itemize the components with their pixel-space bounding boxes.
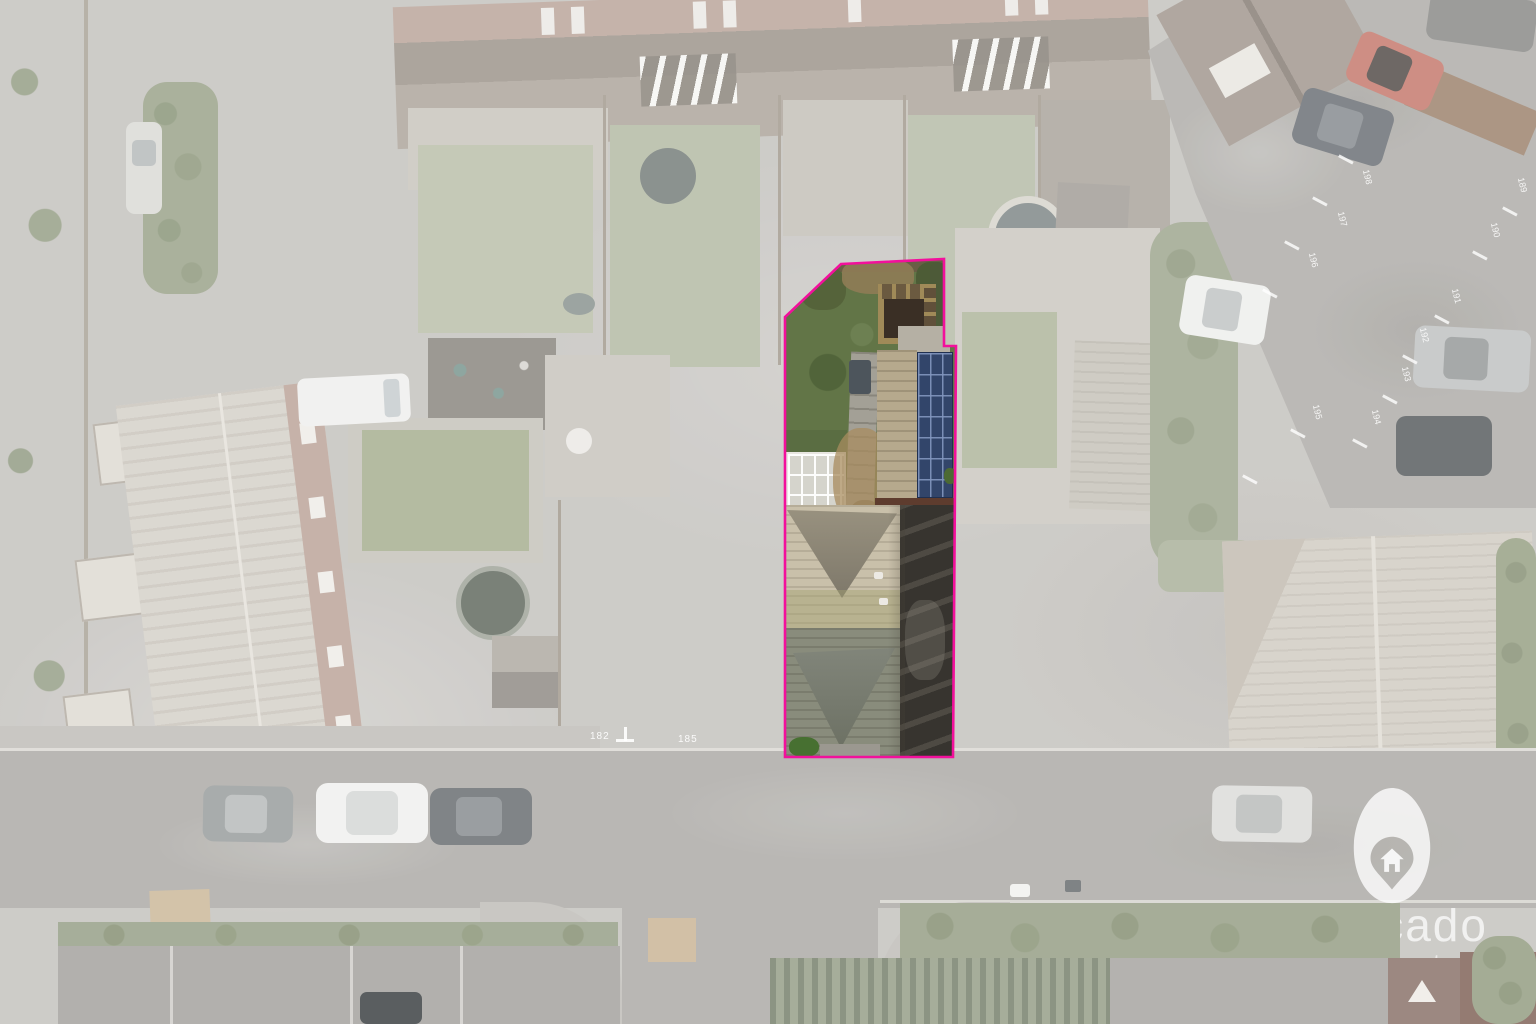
garden-shed: [492, 636, 560, 708]
outbuilding-tile-roof: [877, 350, 917, 500]
lawn: [362, 430, 529, 551]
fence-line: [558, 500, 561, 750]
pavement-number: 182: [590, 731, 610, 742]
car-roof: [346, 791, 398, 835]
roof-vent: [879, 598, 888, 605]
dark-car: [430, 788, 532, 845]
car-windows: [1365, 44, 1415, 94]
large-roof: [1222, 531, 1536, 770]
pavement-number: 185: [678, 734, 698, 745]
garden-table: [566, 428, 592, 454]
grey-car: [203, 785, 294, 843]
shrub: [789, 737, 819, 757]
storage-box: [849, 360, 871, 394]
white-van-small: [1010, 884, 1030, 897]
path-edge: [820, 744, 880, 757]
window: [1004, 0, 1018, 16]
car-windshield: [132, 140, 156, 166]
fence-line: [603, 95, 606, 367]
fence-line: [778, 95, 781, 365]
car-windows: [225, 795, 268, 834]
window: [318, 571, 335, 594]
trampoline: [640, 148, 696, 204]
allotment-rows: [770, 958, 1110, 1024]
skylight-array: [640, 53, 738, 106]
pond: [563, 293, 595, 315]
curb-line: [0, 748, 1536, 751]
parked-car: [126, 122, 162, 214]
flat-roof-garage: [428, 338, 556, 430]
roof-white-patch: [1209, 43, 1271, 98]
trees: [1496, 538, 1536, 768]
grey-car: [1412, 325, 1531, 393]
car-windows: [1236, 795, 1283, 834]
trees: [1472, 936, 1536, 1024]
car-windshield: [1201, 287, 1243, 332]
window: [1034, 0, 1048, 15]
roof-ridge: [1371, 536, 1383, 764]
roof-ridge: [217, 393, 266, 769]
dark-car: [360, 992, 422, 1024]
pavement-mark: [616, 739, 634, 742]
shrub: [944, 468, 956, 484]
window: [571, 7, 585, 34]
white-car: [1212, 785, 1313, 843]
garage-roof: [1069, 341, 1163, 512]
roof-vent: [874, 572, 883, 579]
hedge-row: [900, 903, 1400, 961]
window: [327, 645, 344, 668]
car-windows: [456, 797, 502, 836]
car-windows: [1443, 337, 1489, 381]
van-windshield: [383, 379, 401, 418]
faded-surroundings: 198197196195194193192191190189: [0, 0, 1536, 1024]
car-roof: [1315, 102, 1364, 150]
white-car: [316, 783, 428, 843]
driveway-divider: [460, 946, 463, 1024]
dark-car: [1396, 416, 1492, 476]
driveway-divider: [170, 946, 173, 1024]
fence-line: [84, 0, 88, 748]
tactile-paving: [648, 918, 696, 962]
window: [541, 8, 555, 35]
lawn: [962, 312, 1057, 468]
hedge-row: [58, 922, 618, 948]
window: [308, 496, 325, 519]
driveway: [58, 946, 620, 1024]
roof-hip-shade: [888, 505, 905, 757]
window: [848, 0, 862, 22]
wheelie-bin: [1065, 880, 1081, 892]
white-van: [297, 373, 411, 427]
alley-puddle: [905, 600, 945, 680]
patio: [783, 100, 908, 236]
driveway-divider: [350, 946, 353, 1024]
patio: [545, 355, 670, 497]
aerial-photo-stage: 198197196195194193192191190189: [0, 0, 1536, 1024]
window: [723, 0, 737, 27]
window: [693, 1, 707, 28]
gable-triangle: [1408, 980, 1436, 1002]
skylight-array: [952, 36, 1050, 91]
trampoline: [456, 566, 530, 640]
